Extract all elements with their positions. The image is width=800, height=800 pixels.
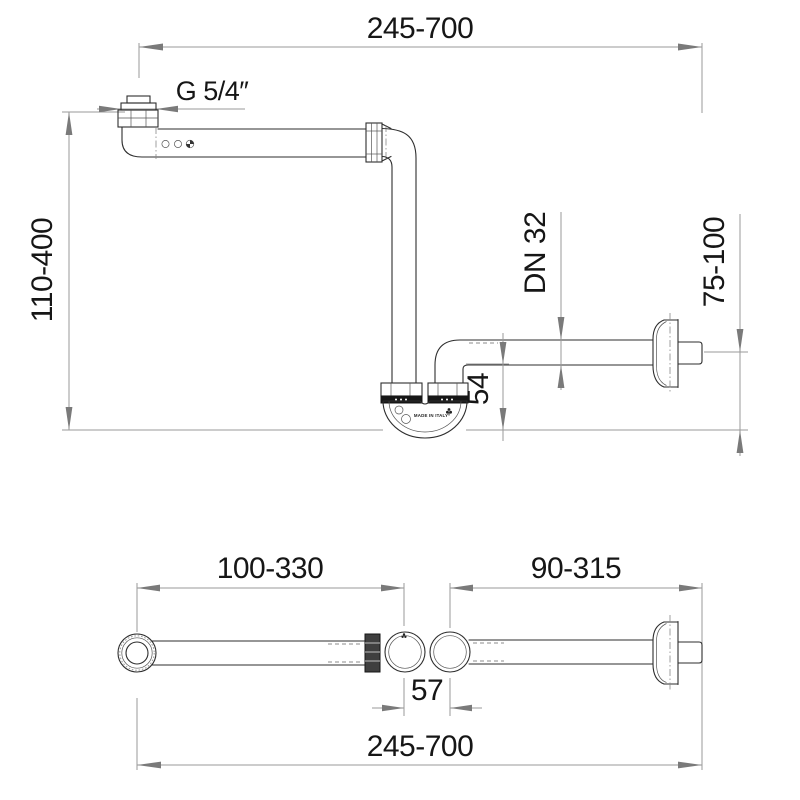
dim-port-spacing: 57 xyxy=(372,674,482,716)
port-spacing-label: 57 xyxy=(411,674,443,707)
arrowhead xyxy=(558,317,565,340)
inlet-ring-nut xyxy=(118,634,156,672)
arrowhead xyxy=(737,329,744,352)
outlet-stub-plan xyxy=(678,642,702,663)
arrowhead xyxy=(139,44,163,51)
trap-drop-label: 54 xyxy=(462,373,495,405)
wall-height-range-label: 75-100 xyxy=(698,217,731,307)
elbow-vertical-pipe xyxy=(382,129,416,384)
outlet-arm-label: 90-315 xyxy=(531,552,621,585)
inlet-pipe xyxy=(122,127,366,159)
arrowhead xyxy=(66,407,73,430)
cleanout-dimple xyxy=(402,415,411,424)
inlet-nut xyxy=(118,110,158,127)
arrowhead xyxy=(500,342,507,364)
inlet-thread-label: G 5/4″ xyxy=(176,76,250,106)
recycle-mark-icon xyxy=(186,140,194,148)
dim-overall-width-bottom: 245-700 xyxy=(137,698,702,770)
inlet-arm-label: 100-330 xyxy=(217,552,324,585)
dim-wall-height-range: 75-100 xyxy=(698,214,748,456)
dim-outlet-dn: DN 32 xyxy=(519,212,564,390)
dim-trap-drop: 54 xyxy=(462,333,509,441)
arrowhead xyxy=(737,430,744,453)
wall-flange-plan xyxy=(653,615,702,691)
arrowhead xyxy=(679,585,702,592)
bottle-trap: MADE IN ITALY xyxy=(381,383,468,438)
dim-top-span-label: 245-700 xyxy=(367,12,474,45)
inlet-pipe-plan xyxy=(152,641,365,665)
trap-ports-plan xyxy=(385,632,470,672)
arrowhead xyxy=(381,585,404,592)
dim-inlet-arm: 100-330 xyxy=(137,552,404,632)
weep-hole xyxy=(162,140,169,147)
trap-bowl: MADE IN ITALY xyxy=(383,401,467,438)
side-view: 245-700 G 5/4″ 110-400 xyxy=(26,12,748,456)
arrowhead xyxy=(137,585,160,592)
plan-view: 100-330 90-315 xyxy=(118,552,702,770)
technical-drawing: 245-700 G 5/4″ 110-400 xyxy=(0,0,800,800)
outlet-stub xyxy=(678,342,702,364)
cleanout-dimple xyxy=(395,406,403,414)
arrowhead xyxy=(382,705,404,711)
arrowhead xyxy=(137,762,161,769)
outlet-pipe-plan xyxy=(469,640,653,664)
arrowhead xyxy=(450,585,473,592)
union-nut-plan xyxy=(365,634,380,672)
arrowhead xyxy=(678,44,702,51)
arrowhead xyxy=(678,762,702,769)
dim-height-range: 110-400 xyxy=(26,112,72,430)
trap-nut-left xyxy=(381,383,422,403)
arrowhead xyxy=(156,106,178,112)
arrowhead xyxy=(66,112,73,135)
made-in-italy-label: MADE IN ITALY xyxy=(414,413,448,418)
wall-flange-side xyxy=(653,313,702,394)
inlet-tailpiece-stub xyxy=(127,96,150,103)
outlet-dn-label: DN 32 xyxy=(519,212,552,295)
arrowhead xyxy=(558,365,565,388)
dim-bottom-span-label: 245-700 xyxy=(367,730,474,763)
drawing-canvas: 245-700 G 5/4″ 110-400 xyxy=(0,0,800,800)
height-range-label: 110-400 xyxy=(26,218,59,322)
arrowhead xyxy=(450,705,472,711)
weep-hole xyxy=(174,140,181,147)
arrowhead xyxy=(500,408,507,430)
